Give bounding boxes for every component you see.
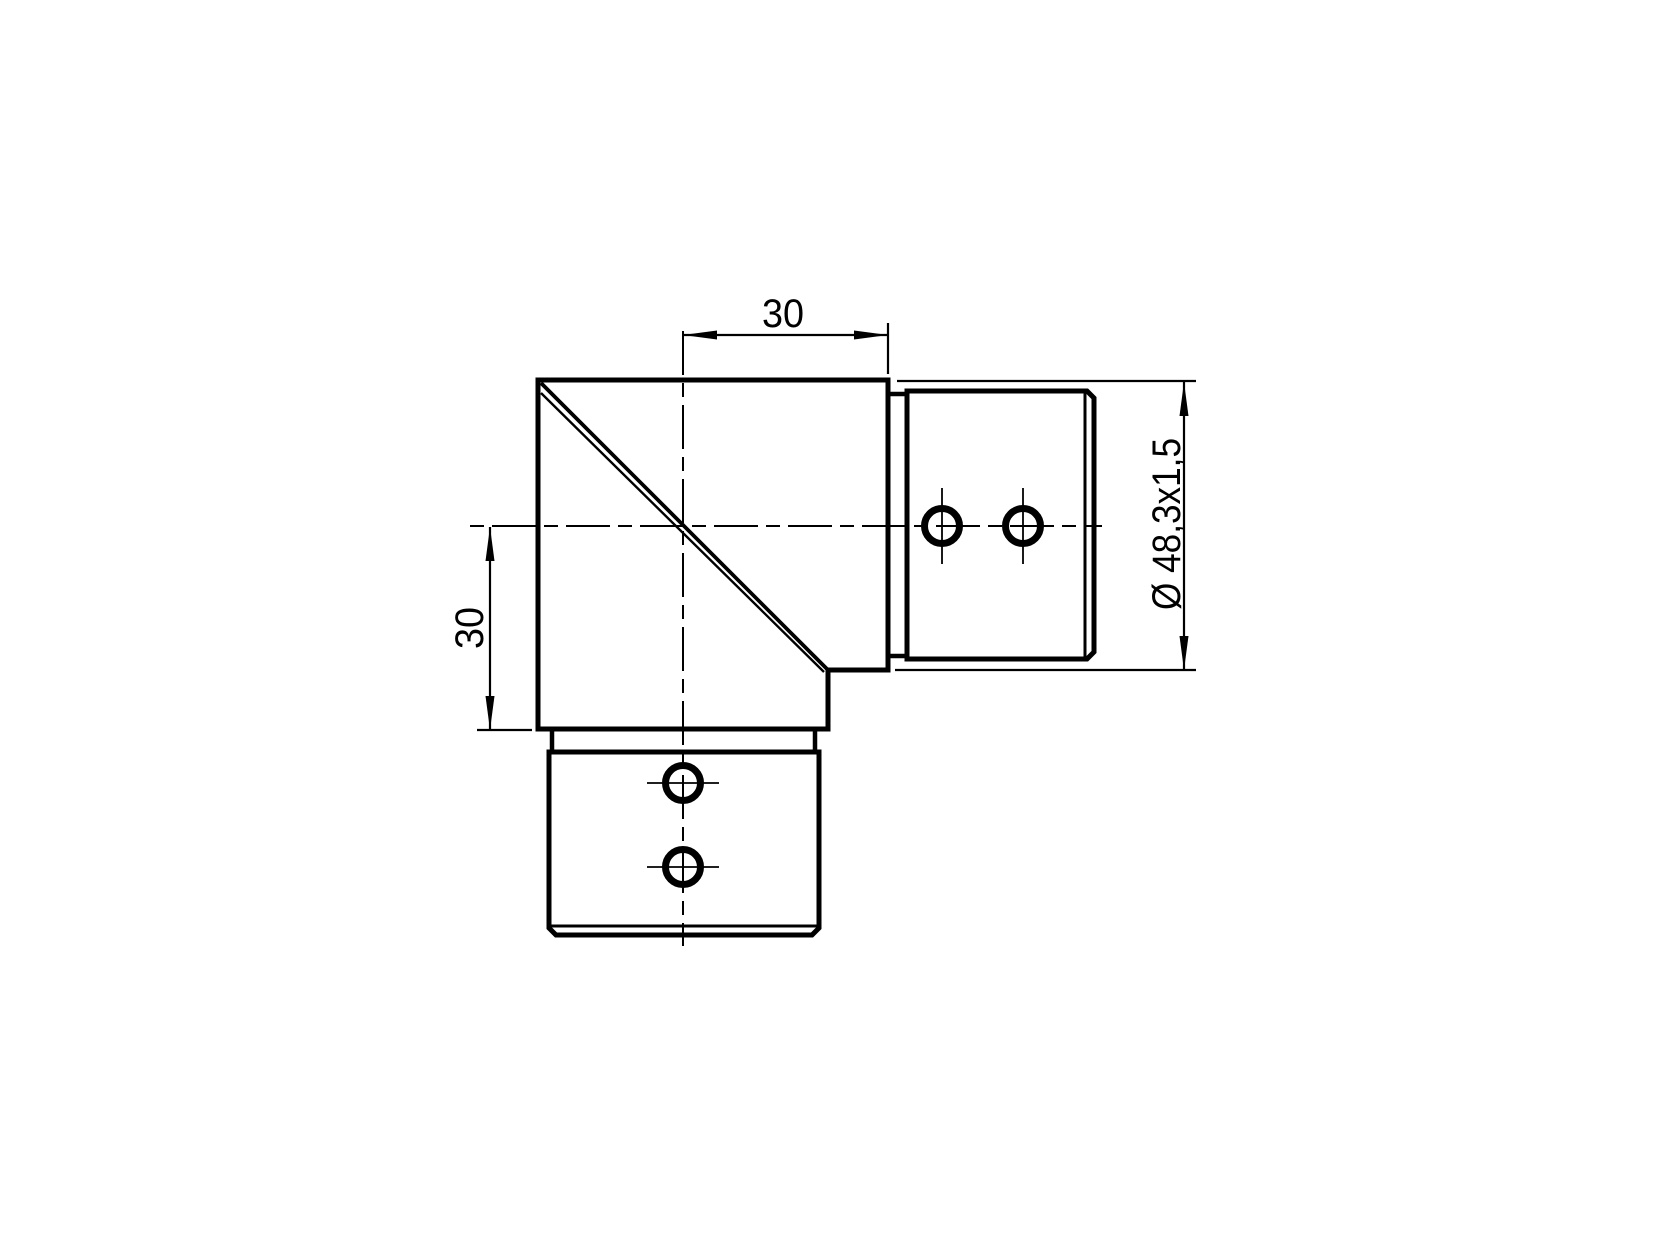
top-dim-label: 30 <box>762 292 804 336</box>
elbow-body <box>538 380 888 729</box>
left-dim-arrow-top <box>486 527 495 561</box>
dimension-side-offset: 30 <box>448 527 532 730</box>
elbow-fitting-drawing: 30 30 Ø 48,3x1,5 <box>0 0 1680 1260</box>
diameter-dim-label: Ø 48,3x1,5 <box>1145 438 1189 610</box>
diameter-arrow-top <box>1180 382 1189 416</box>
centerlines <box>470 331 1102 946</box>
left-dim-label: 30 <box>448 607 492 649</box>
top-dim-arrow-left <box>683 331 717 340</box>
left-dim-arrow-bottom <box>486 696 495 730</box>
technical-drawing-canvas: 30 30 Ø 48,3x1,5 <box>0 0 1680 1260</box>
top-dim-arrow-right <box>854 331 888 340</box>
diameter-arrow-bottom <box>1180 636 1189 670</box>
dimension-top-width: 30 <box>683 292 888 374</box>
